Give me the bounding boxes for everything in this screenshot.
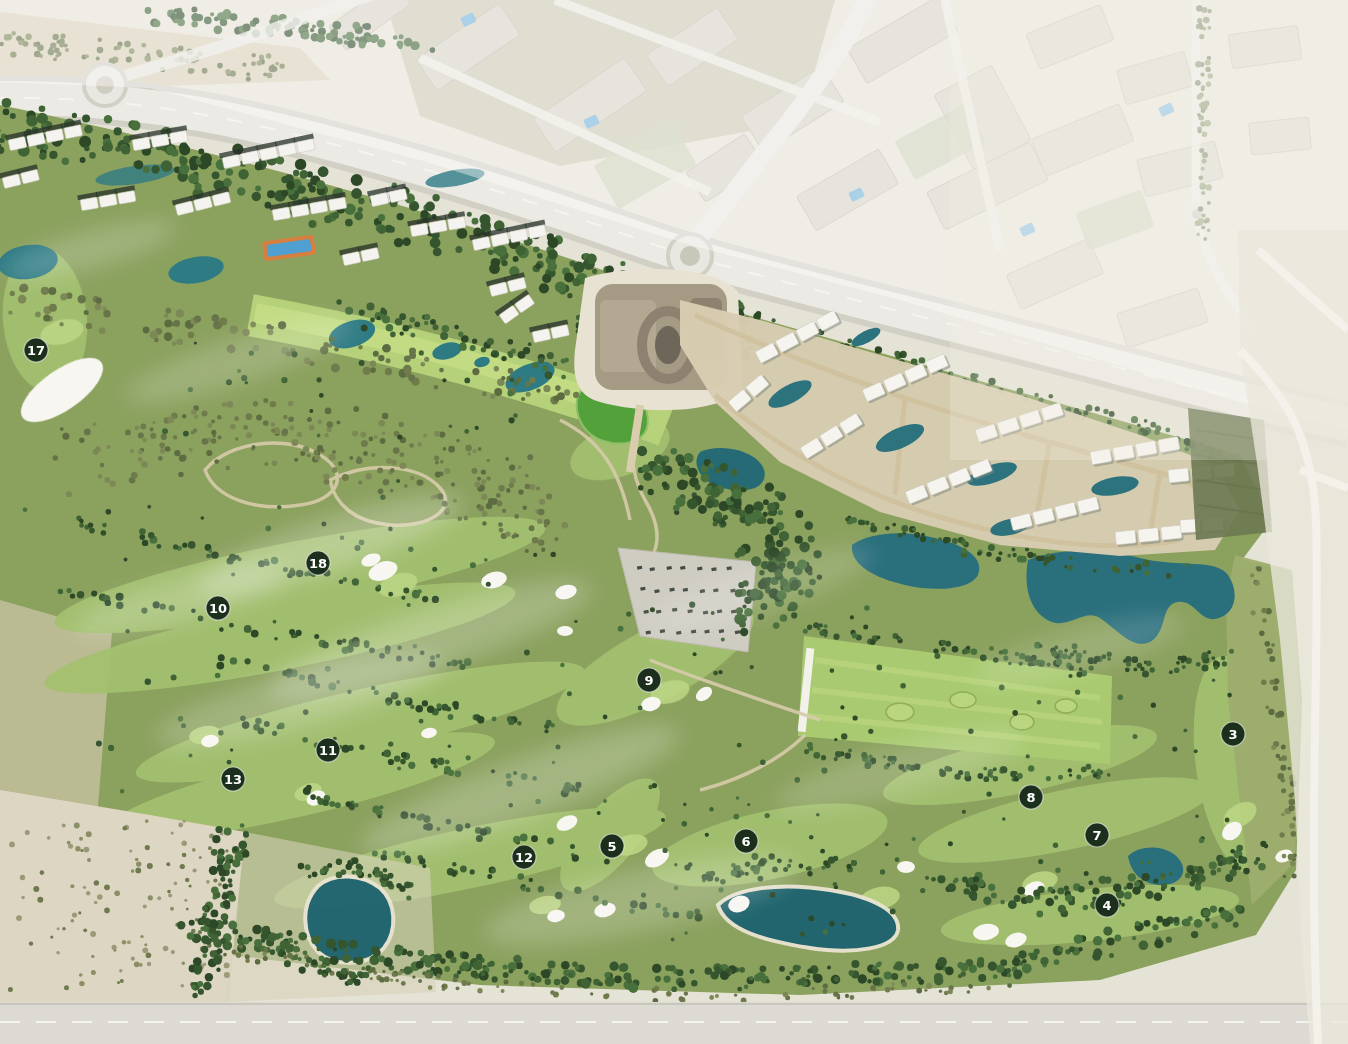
hole-number: 10 [209,601,227,616]
masterplan-svg: 1718109111312563874 [0,0,1348,1044]
hole-marker-10[interactable]: 10 [206,596,230,620]
hole-marker-3[interactable]: 3 [1221,722,1245,746]
hole-number: 3 [1228,727,1237,742]
hole-marker-9[interactable]: 9 [637,668,661,692]
hole-number: 4 [1102,898,1111,913]
hole-marker-18[interactable]: 18 [306,551,330,575]
hole-number: 6 [741,834,750,849]
hole-number: 11 [319,743,337,758]
hole-number: 5 [607,839,616,854]
roundabout-central-island [680,246,700,266]
hole-number: 17 [27,343,45,358]
hole-marker-11[interactable]: 11 [316,738,340,762]
hole-marker-4[interactable]: 4 [1095,893,1119,917]
hole-number: 13 [224,772,242,787]
hole-number: 12 [515,850,533,865]
hole-number: 9 [644,673,653,688]
hole-marker-12[interactable]: 12 [512,845,536,869]
bottom-road [0,1002,1348,1044]
hole-number: 8 [1026,790,1035,805]
hole-marker-7[interactable]: 7 [1085,823,1109,847]
hole-marker-13[interactable]: 13 [221,767,245,791]
hole-marker-5[interactable]: 5 [600,834,624,858]
masterplan-map[interactable]: 1718109111312563874 [0,0,1348,1044]
hole-number: 18 [309,556,327,571]
hole-number: 7 [1092,828,1101,843]
hole-marker-6[interactable]: 6 [734,829,758,853]
hole-marker-8[interactable]: 8 [1019,785,1043,809]
hole-marker-17[interactable]: 17 [24,338,48,362]
